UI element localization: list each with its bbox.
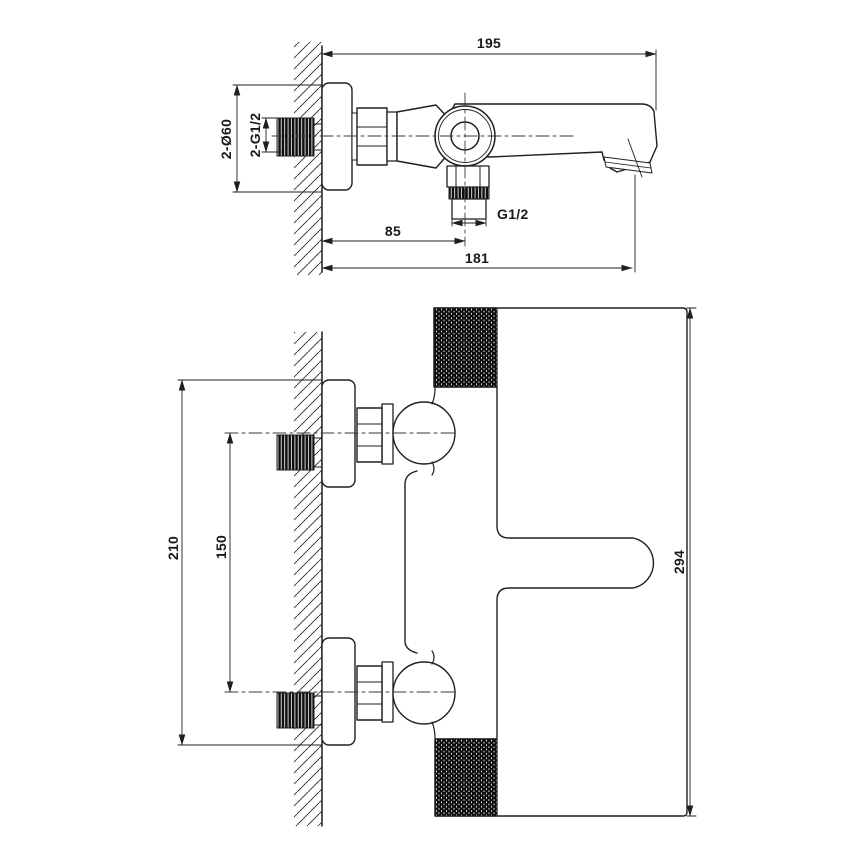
- wall-flange: [322, 83, 352, 190]
- technical-drawing-page: 195 85 181 G1/2 2-Ø60: [0, 0, 868, 868]
- upper-collar: [382, 404, 393, 464]
- lower-ball-joint: [393, 662, 455, 724]
- dim-294: [687, 308, 696, 816]
- wall-hatch-front: [294, 332, 322, 826]
- hex-adapter: [357, 108, 387, 165]
- shower-outlet: [447, 166, 489, 219]
- flange-neck: [352, 113, 357, 160]
- upper-hex-adapter: [357, 408, 382, 462]
- lower-hex-adapter: [357, 666, 382, 720]
- body-collar: [387, 112, 397, 161]
- dim-label-150: 150: [213, 535, 229, 559]
- dim-label-181: 181: [465, 250, 489, 266]
- dim-label-195: 195: [477, 35, 501, 51]
- dim-label-294: 294: [671, 550, 687, 574]
- dim-label-85: 85: [385, 223, 401, 239]
- dim-label-2g12: 2-G1/2: [247, 113, 263, 158]
- upper-knurled-knob: [434, 308, 497, 387]
- side-view: 195 85 181 G1/2 2-Ø60: [218, 35, 657, 275]
- lower-wall-flange: [322, 638, 355, 745]
- lower-knurled-knob: [435, 739, 497, 816]
- wall-hatch: [294, 42, 322, 275]
- dim-label-210: 210: [165, 536, 181, 560]
- upper-wall-flange: [322, 380, 355, 487]
- dim-195: [322, 50, 656, 110]
- dim-g12: [452, 220, 486, 226]
- body-column: [405, 470, 497, 655]
- faucet-technical-drawing: 195 85 181 G1/2 2-Ø60: [0, 0, 868, 868]
- front-view: 210 150 294: [165, 308, 696, 826]
- dim-label-2d60: 2-Ø60: [218, 119, 234, 159]
- dim-label-g12: G1/2: [497, 206, 529, 222]
